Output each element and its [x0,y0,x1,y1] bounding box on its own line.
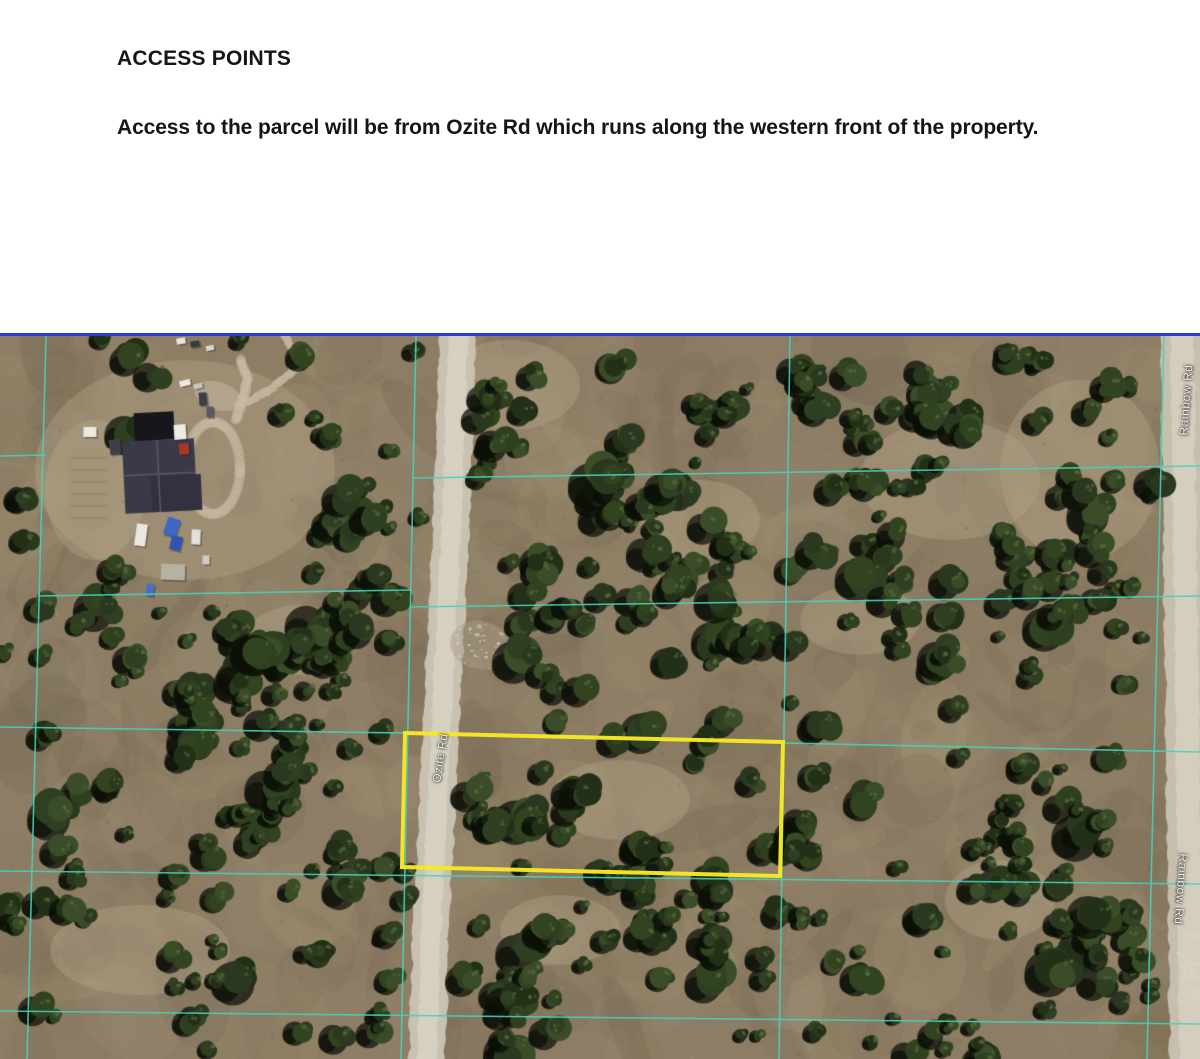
parcel-grid-overlay [0,336,1200,1059]
section-body: Access to the parcel will be from Ozite … [117,112,1082,144]
grid-line-horizontal [409,596,1200,607]
subject-parcel-outline [402,733,783,876]
grid-line-vertical [1147,336,1164,1059]
parcel-map: Ozite Rd Rainbow Rd Rainbow Rd [0,336,1200,1059]
grid-line-vertical [27,336,46,1059]
section-heading: ACCESS POINTS [117,47,1082,71]
grid-line-horizontal [0,455,46,456]
grid-line-vertical [401,336,416,1059]
grid-line-horizontal [414,466,1200,478]
grid-line-vertical [779,336,790,1059]
parcel-grid-lines [0,336,1200,1059]
grid-line-horizontal [0,1011,1200,1024]
document-text-block: ACCESS POINTS Access to the parcel will … [117,47,1082,144]
grid-line-horizontal [783,743,1200,752]
grid-line-horizontal [38,590,412,596]
grid-line-horizontal [0,727,404,733]
